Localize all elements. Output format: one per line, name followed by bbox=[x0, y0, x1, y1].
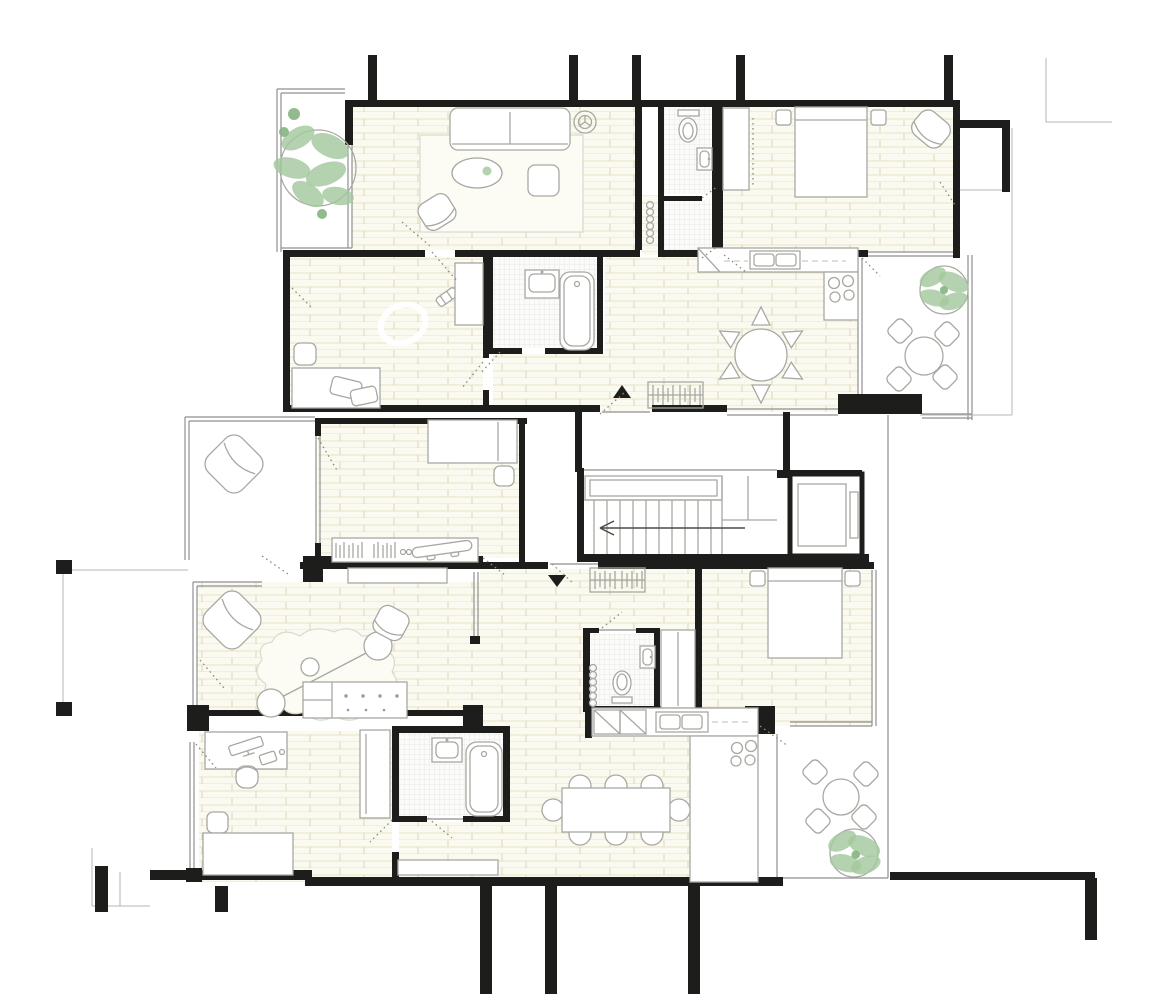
stool bbox=[257, 689, 285, 717]
terrace-lower bbox=[801, 758, 880, 835]
wall-stub bbox=[569, 55, 578, 105]
outdoor-table bbox=[823, 779, 859, 815]
wardrobe bbox=[723, 108, 749, 190]
dining-table bbox=[562, 788, 670, 832]
kitchen-island bbox=[303, 682, 407, 718]
washbasin bbox=[432, 738, 462, 762]
floor-corridor-lower bbox=[480, 630, 590, 736]
wall-stub bbox=[944, 55, 953, 105]
wall-stub bbox=[368, 55, 377, 105]
corridor-bench bbox=[398, 860, 498, 875]
floor-corridor-upper bbox=[493, 354, 605, 412]
shelf bbox=[455, 263, 483, 325]
outdoor-table bbox=[905, 337, 943, 375]
washbasin bbox=[640, 646, 655, 668]
floor-niche bbox=[642, 195, 658, 255]
elevator bbox=[790, 474, 862, 556]
table-plant bbox=[483, 167, 492, 176]
washbasin bbox=[525, 270, 559, 298]
desk-chair bbox=[236, 766, 258, 788]
stool bbox=[301, 658, 319, 676]
nightstand bbox=[776, 110, 791, 125]
coffee-table bbox=[452, 158, 502, 188]
nightstand bbox=[750, 571, 765, 586]
nightstand bbox=[845, 571, 860, 586]
floor-plan-canvas bbox=[0, 0, 1160, 998]
plant-terrace-upper bbox=[916, 263, 971, 314]
pouf bbox=[494, 466, 514, 486]
bed bbox=[203, 833, 293, 875]
bed bbox=[428, 420, 517, 463]
toilet bbox=[612, 671, 632, 703]
wardrobe bbox=[360, 730, 390, 818]
wall-stub bbox=[632, 55, 641, 105]
toilet bbox=[678, 110, 699, 142]
terrace-upper bbox=[885, 317, 961, 393]
sideboard bbox=[348, 568, 447, 583]
loggia-lounge-chair bbox=[200, 430, 268, 498]
partition-post bbox=[470, 636, 480, 644]
bathtub bbox=[560, 272, 594, 350]
floor-entry-lower bbox=[480, 569, 695, 630]
cooktop bbox=[824, 272, 858, 320]
pouf bbox=[207, 812, 228, 833]
sofa bbox=[450, 108, 570, 150]
washbasin bbox=[697, 148, 712, 170]
nightstand bbox=[871, 110, 886, 125]
floor-plan-drawing bbox=[0, 0, 1160, 998]
counter-column bbox=[690, 736, 758, 882]
counter-with-sink bbox=[698, 248, 858, 272]
staircase bbox=[584, 474, 862, 556]
bathtub bbox=[466, 742, 502, 816]
wall-stub bbox=[736, 55, 745, 105]
counter-with-sink bbox=[592, 708, 758, 736]
plant-terrace-lower bbox=[825, 826, 884, 878]
pouf bbox=[294, 343, 316, 365]
pouf bbox=[528, 165, 559, 196]
plant-top-left bbox=[271, 108, 356, 219]
